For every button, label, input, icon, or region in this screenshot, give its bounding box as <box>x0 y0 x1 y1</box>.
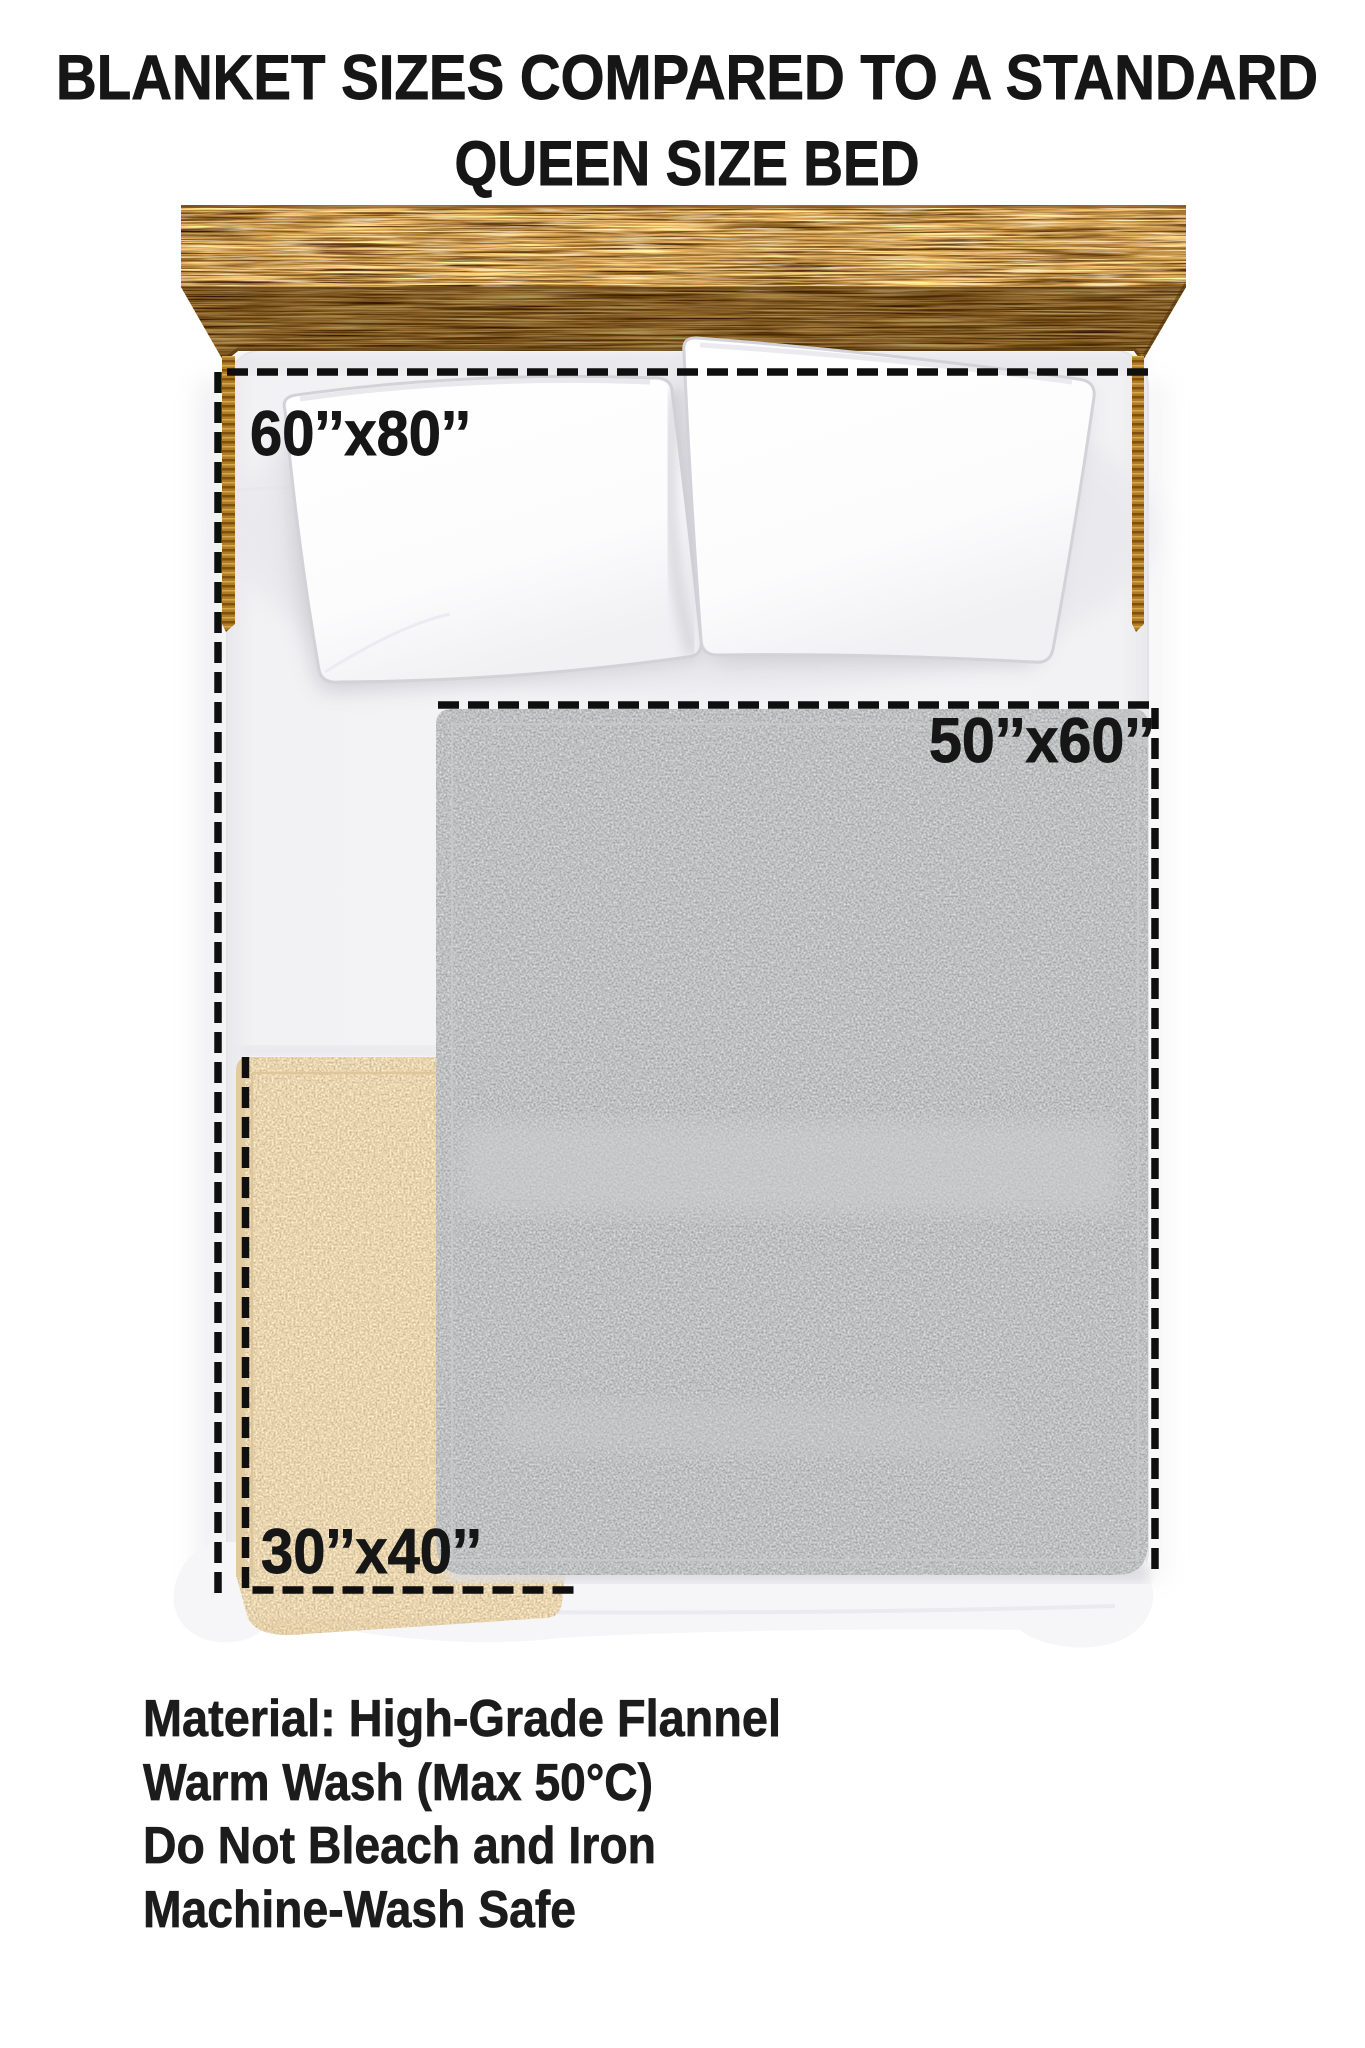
svg-text:QUEEN SIZE BED: QUEEN SIZE BED <box>455 129 920 199</box>
svg-text:BLANKET SIZES COMPARED TO A ST: BLANKET SIZES COMPARED TO A STANDARD <box>56 43 1318 113</box>
svg-text:Machine-Wash Safe: Machine-Wash Safe <box>143 1881 576 1939</box>
svg-text:30’’x40’’: 30’’x40’’ <box>261 1517 482 1587</box>
svg-text:Do Not Bleach and Iron: Do Not Bleach and Iron <box>143 1817 656 1875</box>
svg-text:Material: High-Grade Flannel: Material: High-Grade Flannel <box>143 1690 781 1748</box>
svg-text:50’’x60’’: 50’’x60’’ <box>929 706 1155 776</box>
svg-text:60’’x80’’: 60’’x80’’ <box>250 399 471 469</box>
svg-text:Warm Wash (Max 50°C): Warm Wash (Max 50°C) <box>143 1754 653 1812</box>
